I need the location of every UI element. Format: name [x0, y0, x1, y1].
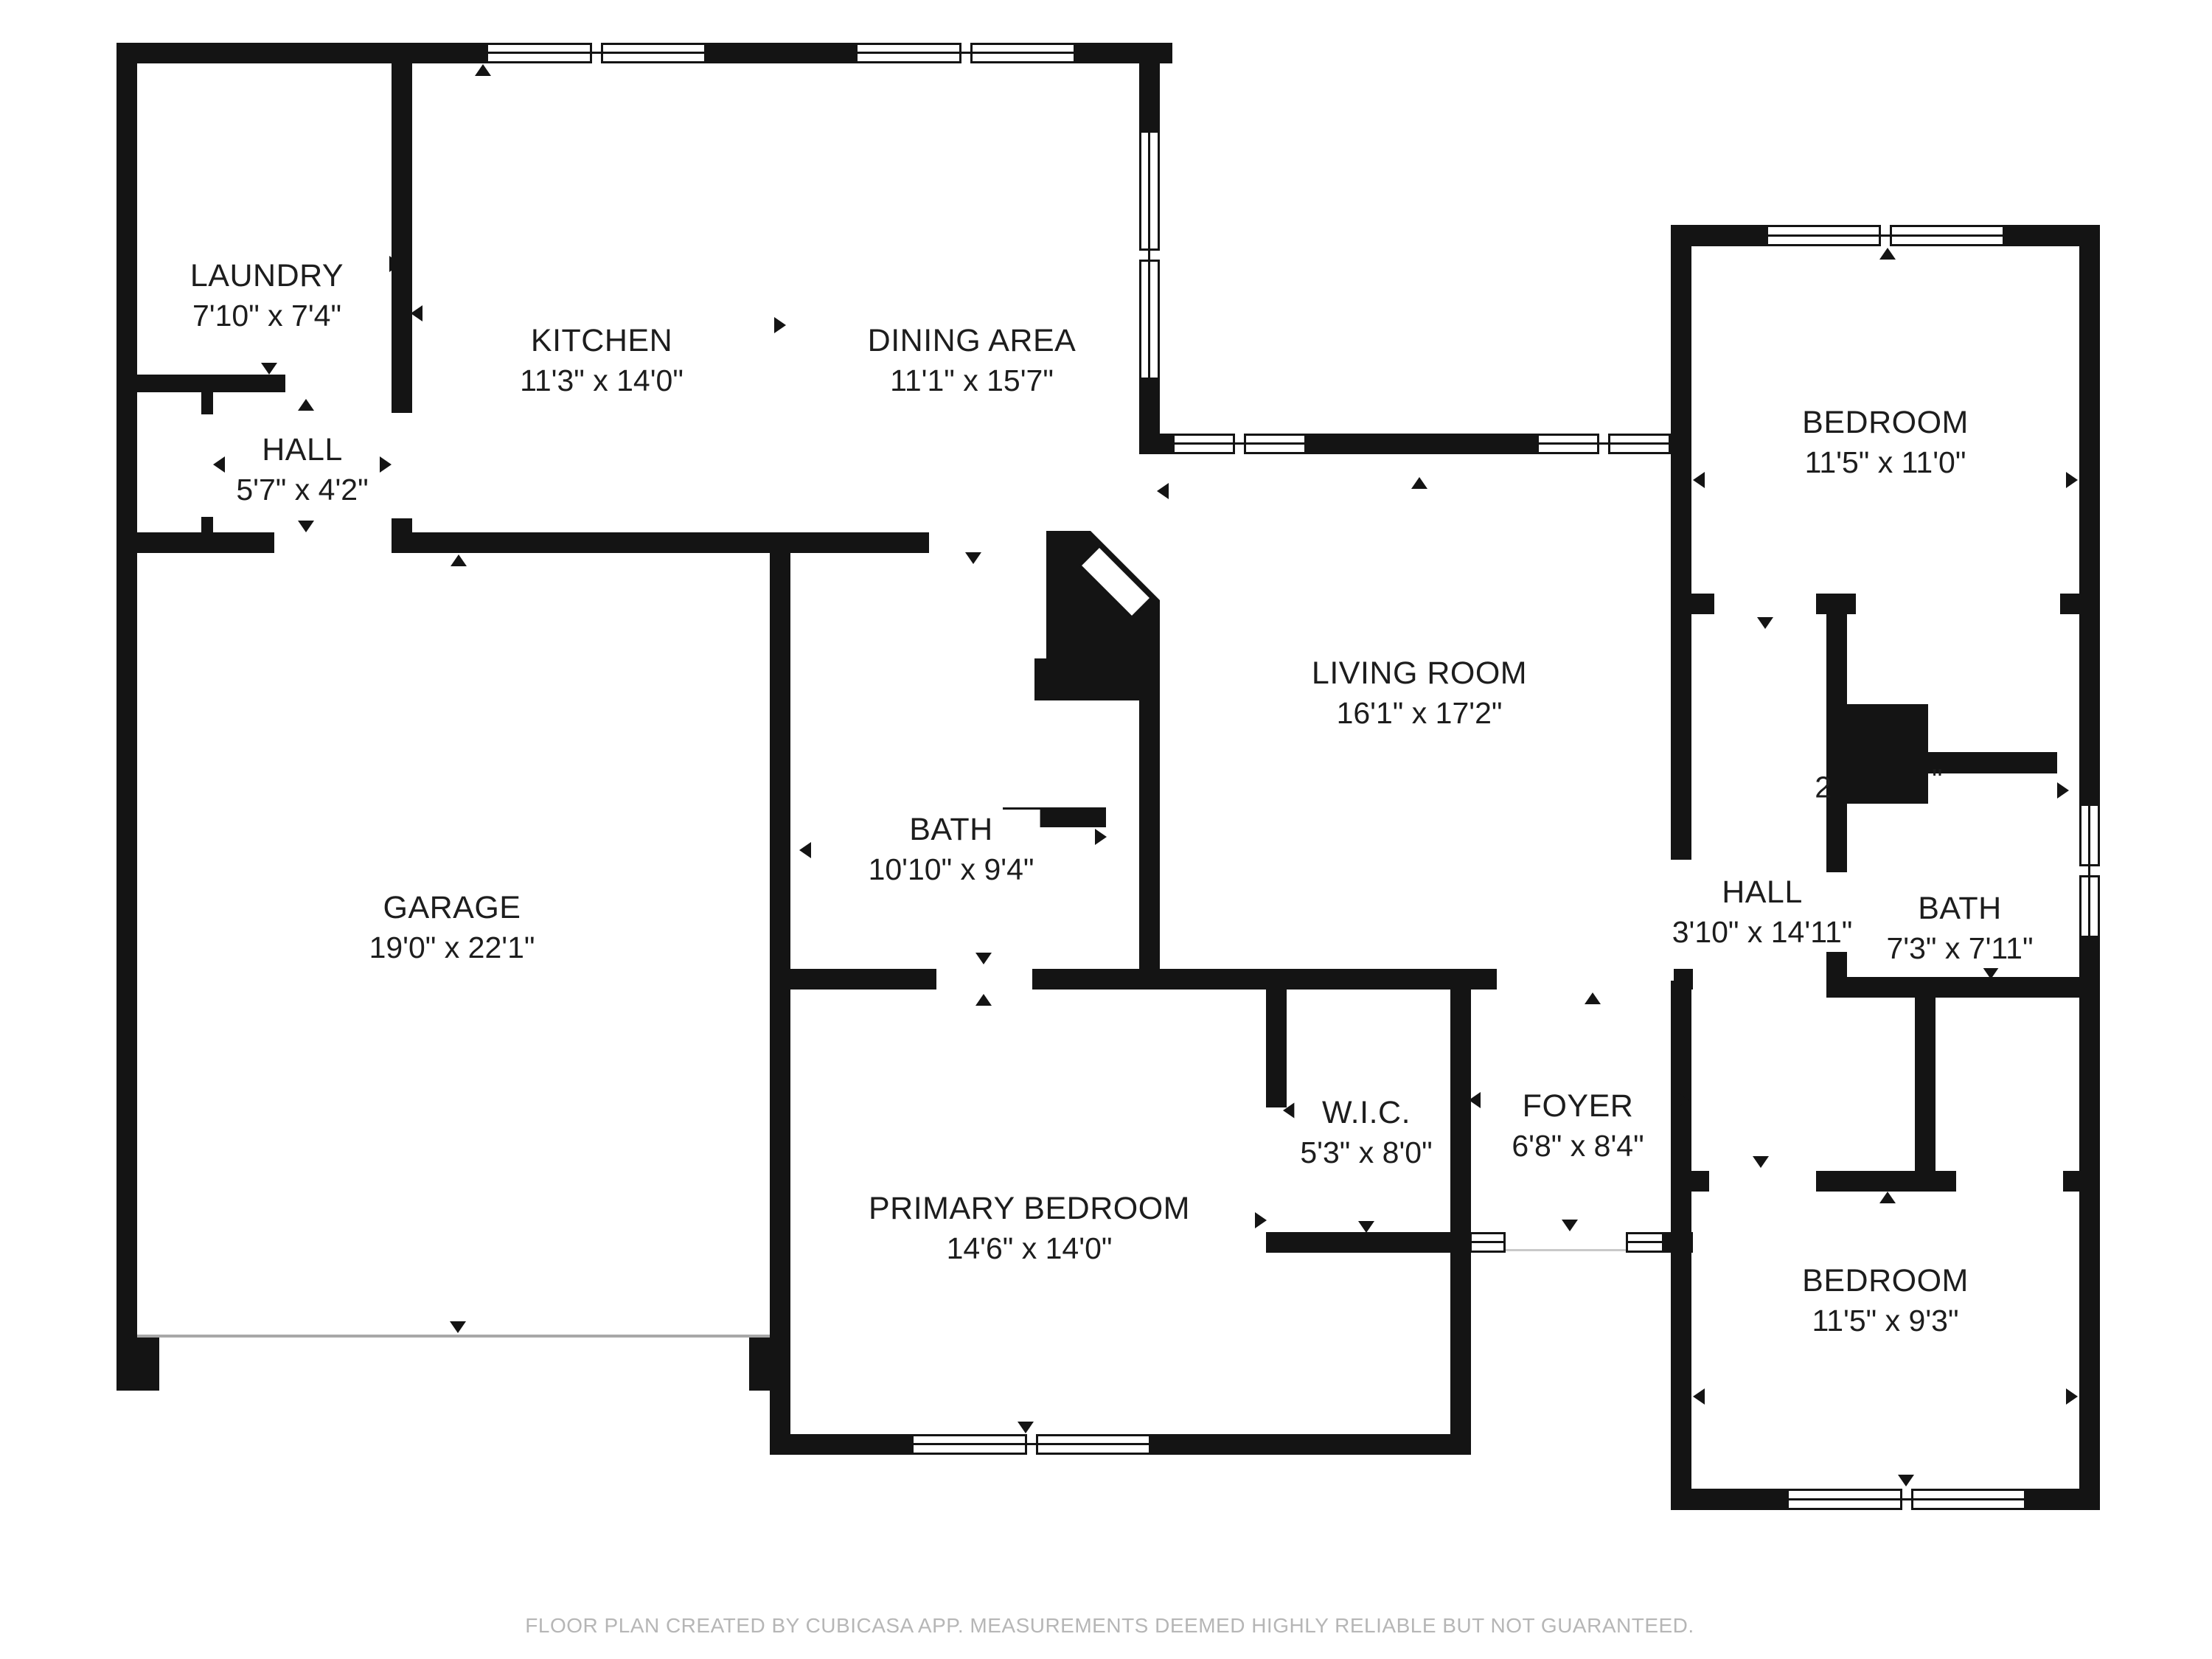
- room-name: BATH: [863, 810, 1040, 849]
- arrow-bath2-bottom: [1983, 967, 1999, 979]
- wall-wing-left-lower: [1671, 981, 1691, 1510]
- wall-bedroom2-top-b: [2063, 1171, 2079, 1192]
- arrow-hall2-bottom: [1753, 1156, 1769, 1168]
- window-bedroom2-bottom: [1787, 1489, 2026, 1510]
- room-name: GARAGE: [364, 888, 541, 928]
- footer-disclaimer: FLOOR PLAN CREATED BY CUBICASA APP. MEAS…: [525, 1614, 1694, 1638]
- entry-sidelight-left: [1470, 1232, 1506, 1253]
- room-dims: 11'5" x 9'3": [1796, 1301, 1975, 1340]
- wall-hall-bottom-left: [116, 532, 274, 553]
- window-mullion: [1233, 434, 1246, 454]
- room-name: HALL: [230, 430, 374, 470]
- room-dims: 5'7" x 4'2": [230, 470, 374, 509]
- arrow-garage-door: [450, 1321, 466, 1333]
- window-mullion: [1879, 225, 1892, 246]
- door-arrow-entry: [1562, 1220, 1578, 1231]
- room-label-kitchen: KITCHEN11'3" x 14'0": [514, 321, 689, 400]
- door-arrow-bedroom1: [1757, 617, 1773, 629]
- room-dims: 11'1" x 15'7": [862, 361, 1082, 400]
- wall-wic-bottom: [1266, 1232, 1470, 1253]
- room-label-hall-left: HALL5'7" x 4'2": [230, 430, 374, 509]
- room-dims: 5'3" x 8'0": [1294, 1133, 1438, 1172]
- room-dims: 19'0" x 22'1": [364, 928, 541, 967]
- room-name: KITCHEN: [514, 321, 689, 361]
- room-dims: 7'3" x 7'11": [1880, 928, 2039, 968]
- window-kitchen-top: [486, 43, 706, 63]
- room-dims: 6'8" x 8'4": [1506, 1126, 1649, 1166]
- room-name: W.I.C.: [1294, 1093, 1438, 1133]
- wall-bedroom1-bottom-b: [1816, 594, 1856, 614]
- door-arrow-hall-top: [298, 399, 314, 411]
- door-arrow-laundry: [261, 363, 277, 375]
- room-dims: 16'1" x 17'2": [1306, 693, 1533, 733]
- closet-black-box: [1836, 704, 1928, 804]
- wall-laundry-kitchen: [392, 63, 412, 392]
- window-mullion: [959, 43, 973, 63]
- arrow-hall-left: [213, 456, 225, 473]
- room-name: BEDROOM: [1796, 1261, 1975, 1301]
- entry-sidelight-right: [1626, 1232, 1664, 1253]
- room-dims: 10'10" x 9'4": [863, 849, 1040, 889]
- window-mullion: [1139, 248, 1160, 262]
- garage-door-line: [137, 1335, 770, 1338]
- arrow-bedroom1-left: [1693, 472, 1705, 488]
- window-dining-top: [855, 43, 1076, 63]
- window-mullion: [1025, 1434, 1038, 1455]
- wall-bedroom1-bottom-a: [1691, 594, 1714, 614]
- closet-label-fragment-left: 2: [1787, 771, 1832, 805]
- arrow-bedroom2-left: [1693, 1388, 1705, 1405]
- window-mullion: [590, 43, 603, 63]
- arrow-wic-edge: [1255, 1212, 1267, 1228]
- fireplace-angled-corner: [1029, 525, 1161, 702]
- room-name: PRIMARY BEDROOM: [863, 1189, 1196, 1228]
- arrow-primary-window: [1018, 1422, 1034, 1433]
- wall-bedroom2-top-stub: [1691, 1171, 1709, 1192]
- room-label-living-room: LIVING ROOM16'1" x 17'2": [1306, 653, 1533, 733]
- wall-wing-left-upper: [1671, 225, 1691, 860]
- room-label-primary-bedroom: PRIMARY BEDROOM14'6" x 14'0": [863, 1189, 1196, 1268]
- wall-outer-left: [116, 43, 137, 1339]
- wall-wic-left-stub: [1266, 990, 1287, 1107]
- room-dims: 11'5" x 11'0": [1796, 442, 1975, 482]
- door-arrow-primary-b: [975, 994, 992, 1006]
- room-label-bath-2: BATH7'3" x 7'11": [1880, 888, 2039, 968]
- door-arrow-bath1-wc: [1095, 829, 1107, 845]
- room-name: HALL: [1666, 872, 1859, 912]
- closet-label-fragment-right: ": [1932, 763, 1943, 798]
- wall-hall-right-stub-top: [392, 375, 412, 413]
- room-name: LAUNDRY: [184, 256, 349, 296]
- door-arrow-primary-a: [975, 953, 992, 964]
- room-dims: 3'10" x 14'11": [1666, 912, 1859, 952]
- room-name: BEDROOM: [1796, 403, 1975, 442]
- arrow-bedroom2-right: [2066, 1388, 2078, 1405]
- arrow-bath1-left: [799, 842, 811, 858]
- room-label-bedroom-1: BEDROOM11'5" x 11'0": [1796, 403, 1975, 482]
- room-name: DINING AREA: [862, 321, 1082, 361]
- wall-wic-foyer: [1450, 990, 1471, 1232]
- arrow-foyer-right: [1677, 1092, 1688, 1108]
- window-bedroom1-top: [1766, 225, 2005, 246]
- arrow-foyer-left: [1469, 1092, 1481, 1108]
- room-label-dining-area: DINING AREA11'1" x 15'7": [862, 321, 1082, 400]
- door-arrow-bath2: [2057, 782, 2069, 799]
- wall-primary-top-b: [1032, 969, 1497, 990]
- room-name: LIVING ROOM: [1306, 653, 1533, 693]
- room-dims: 11'3" x 14'0": [514, 361, 689, 400]
- window-mullion: [1900, 1489, 1913, 1510]
- room-name: BATH: [1880, 888, 2039, 928]
- arrow-bedroom2-window: [1898, 1475, 1914, 1486]
- arrow-kitchen-window: [475, 64, 491, 76]
- wall-bedroom1-bottom-c: [2060, 594, 2079, 614]
- arrow-kitchen-edge: [411, 305, 422, 321]
- floor-plan: LAUNDRY7'10" x 7'4" KITCHEN11'3" x 14'0"…: [0, 0, 2212, 1659]
- window-living-1: [1172, 434, 1307, 454]
- wall-primary-top-a: [770, 969, 936, 990]
- wall-garage-right: [770, 553, 790, 1455]
- door-arrow-wic: [1283, 1102, 1295, 1119]
- wall-kitchen-bottom: [394, 532, 929, 553]
- window-primary-bottom: [911, 1434, 1151, 1455]
- arrow-wic-bottom: [1358, 1221, 1374, 1233]
- door-arrow-hall-bottom: [298, 521, 314, 532]
- wall-bath2-top: [1928, 752, 2057, 773]
- room-name: FOYER: [1506, 1086, 1649, 1126]
- wall-living-left: [1139, 700, 1160, 969]
- door-arrow-bath1: [965, 552, 981, 564]
- wall-nook-stub-top: [201, 392, 213, 414]
- wall-laundry-bottom: [137, 375, 285, 392]
- room-label-bedroom-2: BEDROOM11'5" x 9'3": [1796, 1261, 1975, 1340]
- room-label-hall-right: HALL3'10" x 14'11": [1666, 872, 1859, 952]
- arrow-foyer-top: [1585, 992, 1601, 1004]
- door-arrow-bedroom2: [1879, 1192, 1896, 1203]
- room-label-laundry: LAUNDRY7'10" x 7'4": [184, 256, 349, 335]
- arrow-kitchen-dining: [774, 317, 786, 333]
- room-label-garage: GARAGE19'0" x 22'1": [364, 888, 541, 967]
- arrow-bedroom1-window: [1879, 248, 1896, 260]
- arrow-bedroom1-right: [2066, 472, 2078, 488]
- window-mullion: [2079, 864, 2100, 877]
- entry-door-line: [1506, 1249, 1626, 1251]
- window-dining-right: [1139, 131, 1160, 380]
- door-arrow-garage: [451, 554, 467, 566]
- wall-bath2-bottom: [1826, 977, 2100, 998]
- window-living-2: [1537, 434, 1671, 454]
- wall-primary-right: [1450, 1253, 1471, 1455]
- window-bath2-right: [2079, 804, 2100, 938]
- arrow-laundry-edge: [389, 256, 401, 272]
- room-dims: 14'6" x 14'0": [863, 1228, 1196, 1268]
- arrow-living-window: [1411, 477, 1427, 489]
- room-dims: 7'10" x 7'4": [184, 296, 349, 335]
- wall-closet-divider: [1915, 998, 1935, 1192]
- room-label-wic: W.I.C.5'3" x 8'0": [1294, 1093, 1438, 1172]
- arrow-living-corner: [1157, 483, 1169, 499]
- room-label-bath-main: BATH10'10" x 9'4": [863, 810, 1040, 889]
- room-label-foyer: FOYER6'8" x 8'4": [1506, 1086, 1649, 1166]
- arrow-hall-right: [380, 456, 392, 473]
- window-mullion: [1597, 434, 1610, 454]
- wall-garage-stub-left: [116, 1336, 159, 1391]
- wall-bedroom2-top-a: [1816, 1171, 1956, 1192]
